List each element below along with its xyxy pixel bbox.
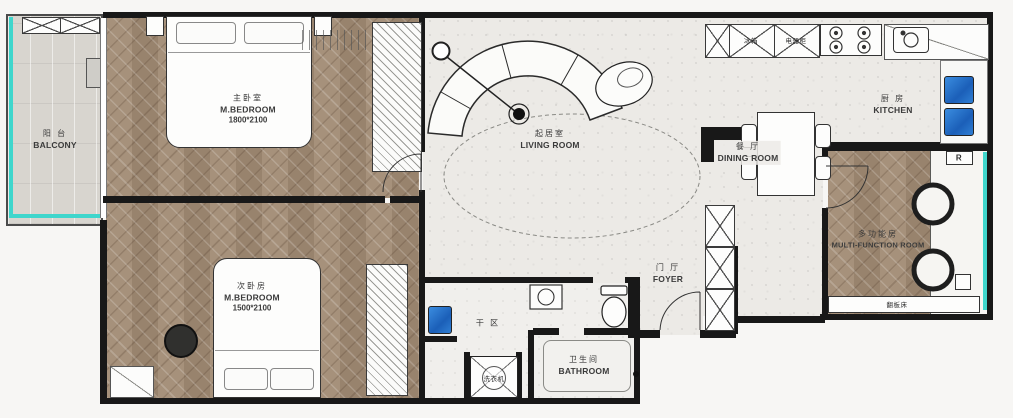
fold-down-bed-label: 翻板床 (887, 299, 908, 309)
multi-function-label-zh: 多功能房 (832, 230, 925, 241)
foyer-cabinet-2 (705, 247, 735, 289)
foyer-cabinet-1 (705, 205, 735, 247)
balcony-cabinet-2 (60, 17, 100, 34)
dry-area-basin (428, 306, 452, 334)
room-label-bathroom: 卫生间 BATHROOM (558, 355, 609, 377)
second-bed-blanket-line (215, 350, 319, 351)
room-label-dry-area: 干 区 (476, 319, 500, 330)
second-wardrobe (366, 264, 408, 396)
dining-room-label-en: DINING ROOM (718, 153, 779, 164)
floor-plan: 阳 台 BALCONY 主卧室 M.BEDROOM 1800*2100 次卧房 … (0, 0, 1013, 418)
dry-area-label-zh: 干 区 (476, 319, 500, 330)
living-room-label-en: LIVING ROOM (520, 140, 579, 151)
wall-left-lower (100, 220, 107, 404)
master-bed-pillow-2 (244, 22, 304, 44)
sink-basin-2 (944, 108, 974, 136)
stove (820, 24, 882, 56)
multi-function-window (983, 152, 987, 310)
wall-between-bedrooms-a (103, 196, 385, 203)
balcony-window-left (9, 17, 13, 218)
wall-bath-top-a (423, 277, 593, 283)
room-label-living-room: 起居室 LIVING ROOM (520, 129, 579, 151)
radiator-label: R (956, 154, 962, 163)
multi-function-label-en: MULTI-FUNCTION ROOM (832, 240, 925, 250)
wall-bath-inner-b (584, 328, 640, 335)
wall-toilet-right (628, 283, 640, 330)
floor-fixture (955, 274, 971, 290)
balcony-label-zh: 阳 台 (33, 129, 76, 140)
wall-bedroom-living-b (419, 190, 425, 404)
second-bedroom-label-en: M.BEDROOM (224, 292, 280, 303)
washing-machine-label: 洗衣机 (484, 373, 505, 383)
master-wardrobe (372, 22, 422, 172)
kitchen-sink-top (893, 27, 929, 53)
room-label-foyer: 门 厅 FOYER (653, 263, 683, 285)
bathroom-label-zh: 卫生间 (558, 355, 609, 366)
master-bedroom-label-en: M.BEDROOM (220, 104, 276, 115)
second-bedroom-cabinet (110, 366, 154, 398)
room-label-second-bedroom: 次卧房 M.BEDROOM 1500*2100 (224, 281, 280, 314)
room-label-master-bedroom: 主卧室 M.BEDROOM 1800*2100 (220, 93, 276, 126)
wall-multi-bottom (820, 314, 993, 320)
wardrobe-hangers (302, 30, 368, 50)
dining-chair-3 (815, 124, 831, 148)
wall-sink-niche (423, 336, 457, 342)
kitchen-cabinet-1 (705, 24, 730, 58)
room-label-balcony: 阳 台 BALCONY (33, 129, 76, 151)
balcony-bedroom-window (100, 18, 107, 218)
wall-dining-stub-b (701, 140, 714, 162)
balcony-ac-unit (86, 58, 101, 88)
room-label-dining-room: 餐 厅 DINING ROOM (716, 141, 781, 165)
wall-bath-right (634, 330, 640, 404)
wall-dry-bath (528, 330, 534, 398)
wall-corridor-bottom (733, 316, 825, 323)
second-bedroom-label-zh: 次卧房 (224, 281, 280, 292)
room-label-kitchen: 厨 房 KITCHEN (873, 94, 912, 116)
balcony-cabinet-1 (22, 17, 62, 34)
master-bed-pillow-1 (176, 22, 236, 44)
foyer-label-en: FOYER (653, 274, 683, 285)
kitchen-label-zh: 厨 房 (873, 94, 912, 105)
second-bedroom-dims: 1500*2100 (224, 304, 280, 315)
wall-bath-bottom (423, 398, 640, 404)
balcony-label-en: BALCONY (33, 140, 76, 151)
master-bed-blanket-line (168, 52, 310, 53)
fridge-label: 冰箱 (744, 35, 758, 45)
sink-basin-1 (944, 76, 974, 104)
living-room-label-zh: 起居室 (520, 129, 579, 140)
balcony-window-bottom (9, 214, 100, 218)
wall-foyer-bottom-b (700, 330, 736, 338)
dining-room-label-zh: 餐 厅 (718, 142, 779, 153)
bathroom-label-en: BATHROOM (558, 366, 609, 377)
wall-bath-inner-a (533, 328, 559, 335)
balcony-frame (6, 14, 103, 226)
kitchen-label-en: KITCHEN (873, 105, 912, 116)
master-bedroom-label-zh: 主卧室 (220, 93, 276, 104)
appliance-cabinet-label: 电器柜 (786, 35, 807, 45)
master-bedroom-dims: 1800*2100 (220, 116, 276, 127)
second-bed-pillow-1 (224, 368, 268, 390)
second-bed-pillow-2 (270, 368, 314, 390)
wall-bedrooms-bottom (100, 398, 425, 404)
foyer-cabinet-3 (705, 289, 735, 331)
room-label-multi-function: 多功能房 MULTI-FUNCTION ROOM (832, 230, 925, 251)
wall-multi-right (987, 150, 993, 320)
second-bedroom-chair (164, 324, 198, 358)
dining-chair-4 (815, 156, 831, 180)
master-nightstand-left (146, 16, 164, 36)
foyer-label-zh: 门 厅 (653, 263, 683, 274)
